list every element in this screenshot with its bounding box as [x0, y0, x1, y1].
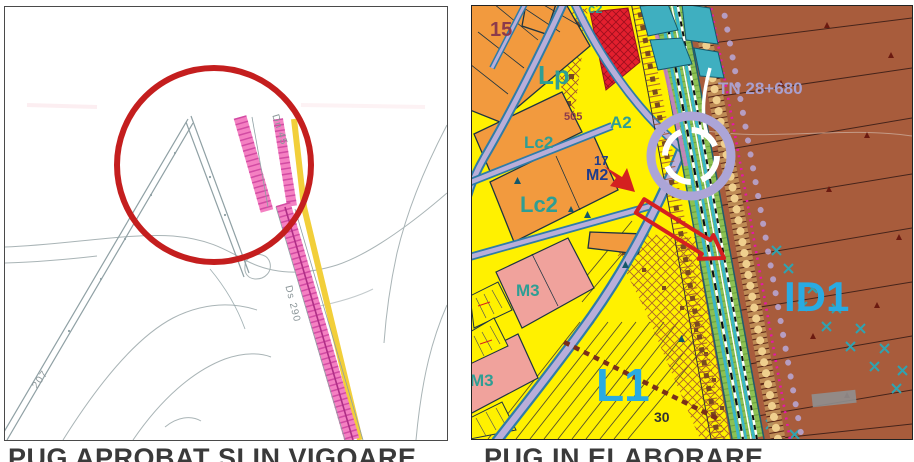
zone-label-30: 30 — [654, 410, 670, 424]
zone-label-m2: M2 — [586, 168, 608, 184]
zone-label-m3-b: M3 — [471, 372, 494, 389]
zone-label-lp: Lp — [538, 62, 570, 88]
left-map-drawing — [5, 7, 447, 440]
road-dots — [68, 152, 226, 332]
caption-right: PUG IN ELABORARE — [484, 445, 764, 462]
road-lines — [5, 116, 249, 440]
zone-label-c2: c2 — [588, 5, 602, 15]
left-map-panel: Dn 45 Ds 290 207 — [4, 6, 448, 441]
scan-smudge — [27, 105, 97, 107]
comparison-figure: Dn 45 Ds 290 207 — [0, 0, 914, 462]
zone-label-tn-28-680: TN 28+680 — [718, 80, 803, 97]
zone-label-17: 17 — [594, 154, 608, 167]
zone-label-id1: ID1 — [784, 276, 849, 318]
zone-label-m3-a: M3 — [516, 282, 540, 299]
caption-left: PUG APROBAT SI IN VIGOARE — [8, 445, 417, 462]
scan-smudge — [301, 105, 425, 107]
zone-label-lc2-a: Lc2 — [524, 134, 553, 151]
zone-label-505: 505 — [564, 112, 582, 123]
zone-label-l1: L1 — [596, 362, 650, 408]
contour-lines — [5, 125, 447, 440]
zone-label-a2: A2 — [610, 114, 632, 131]
zone-label-lc2-b: Lc2 — [520, 194, 558, 216]
zone-label-15: 15 — [490, 20, 512, 40]
right-map-panel: 15 c2 Lp 505 Lc2 Lc2 A2 17 M2 M3 M3 L1 3… — [471, 5, 913, 440]
